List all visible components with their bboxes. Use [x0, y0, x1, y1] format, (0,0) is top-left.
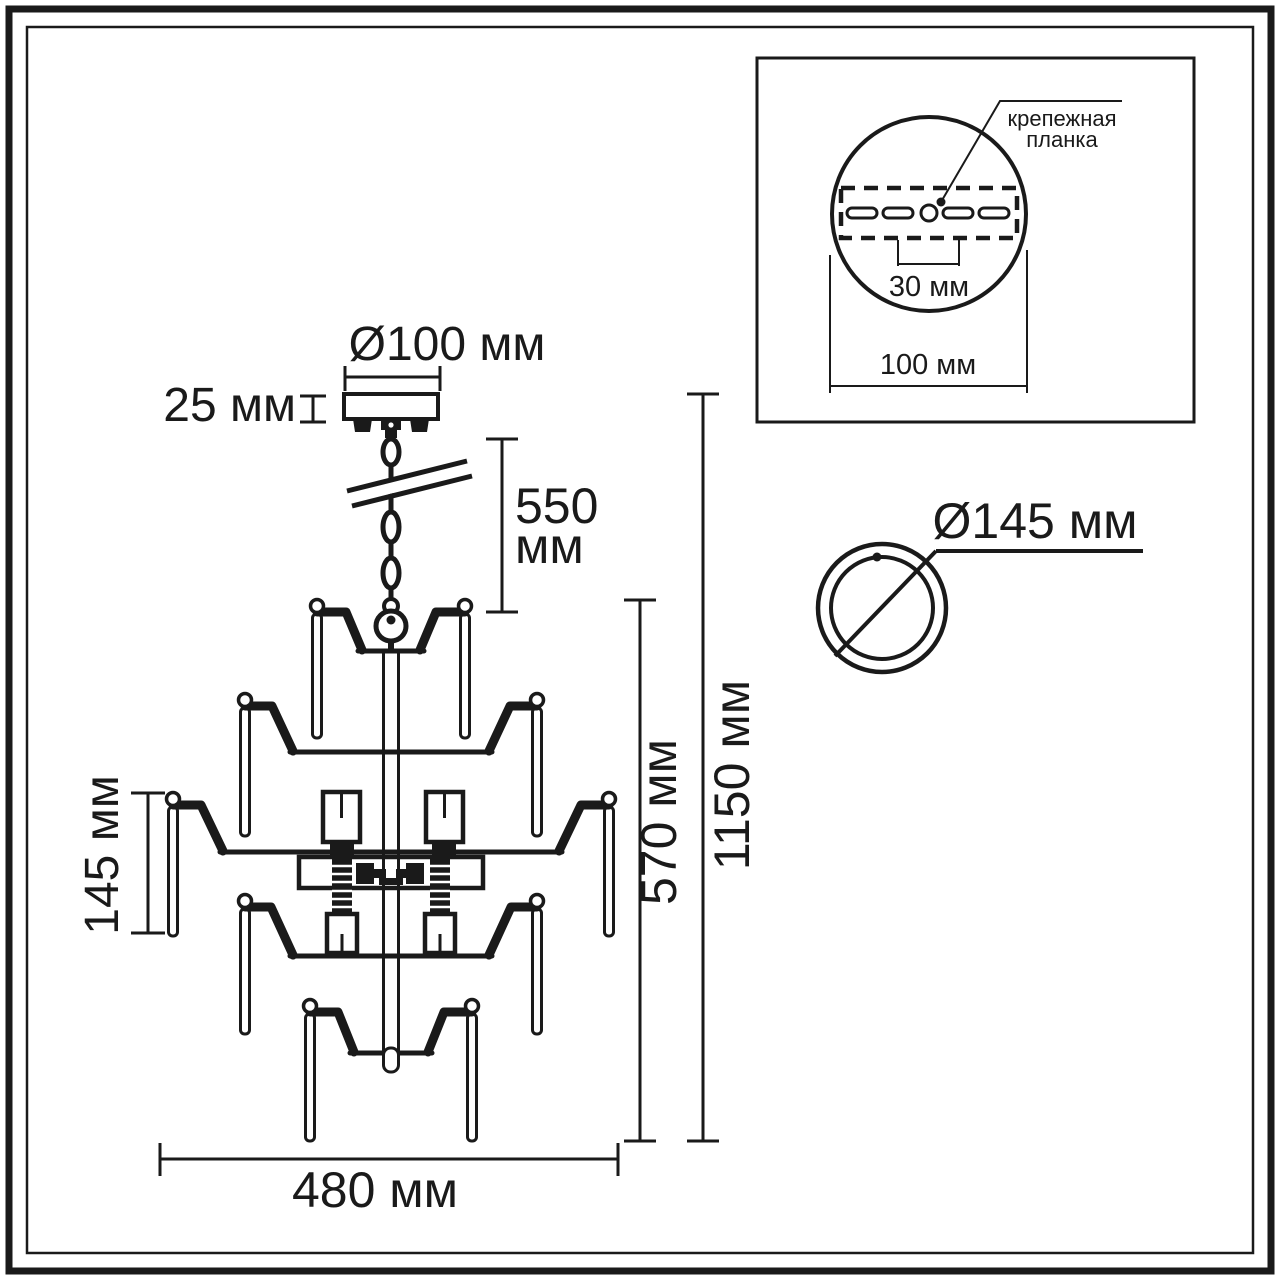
canopy-diameter-label: Ø100 мм [349, 318, 546, 371]
mount-plate-callout-line2: планка [1026, 127, 1098, 152]
chain-break-icon [347, 461, 472, 506]
dimension-chain-length: 550 мм [486, 439, 598, 612]
cup-detail: Ø145 мм [818, 493, 1143, 672]
dimension-body-height: 570 мм [624, 600, 687, 1141]
chain-length-label-unit: мм [515, 518, 584, 574]
dimension-canopy-height: 25 мм [163, 379, 326, 432]
canopy-height-label: 25 мм [163, 379, 296, 432]
mount-plate-slots [847, 205, 1009, 221]
canopy [344, 394, 438, 438]
dimension-pendant-length: 145 мм [76, 775, 165, 934]
mount-plate-detail: крепежная планка 30 мм 100 мм [757, 58, 1194, 422]
total-height-label: 1150 мм [704, 680, 760, 870]
dimension-total-height: 1150 мм [687, 394, 760, 1141]
plate-width-label: 100 мм [880, 349, 976, 381]
pendant-length-label: 145 мм [76, 775, 129, 934]
width-label: 480 мм [292, 1162, 458, 1218]
cup-diameter-label: Ø145 мм [933, 493, 1138, 549]
technical-drawing: Ø100 мм 25 мм 550 мм 145 мм 570 мм 1150 … [0, 0, 1280, 1280]
finial [384, 1048, 399, 1072]
dimension-width: 480 мм [160, 1143, 618, 1218]
drawing-page: Ø100 мм 25 мм 550 мм 145 мм 570 мм 1150 … [0, 0, 1280, 1280]
body-height-label: 570 мм [631, 739, 687, 905]
chain [347, 436, 472, 654]
dimension-canopy-diameter: Ø100 мм [345, 318, 545, 391]
slot-spacing-label: 30 мм [889, 271, 969, 303]
